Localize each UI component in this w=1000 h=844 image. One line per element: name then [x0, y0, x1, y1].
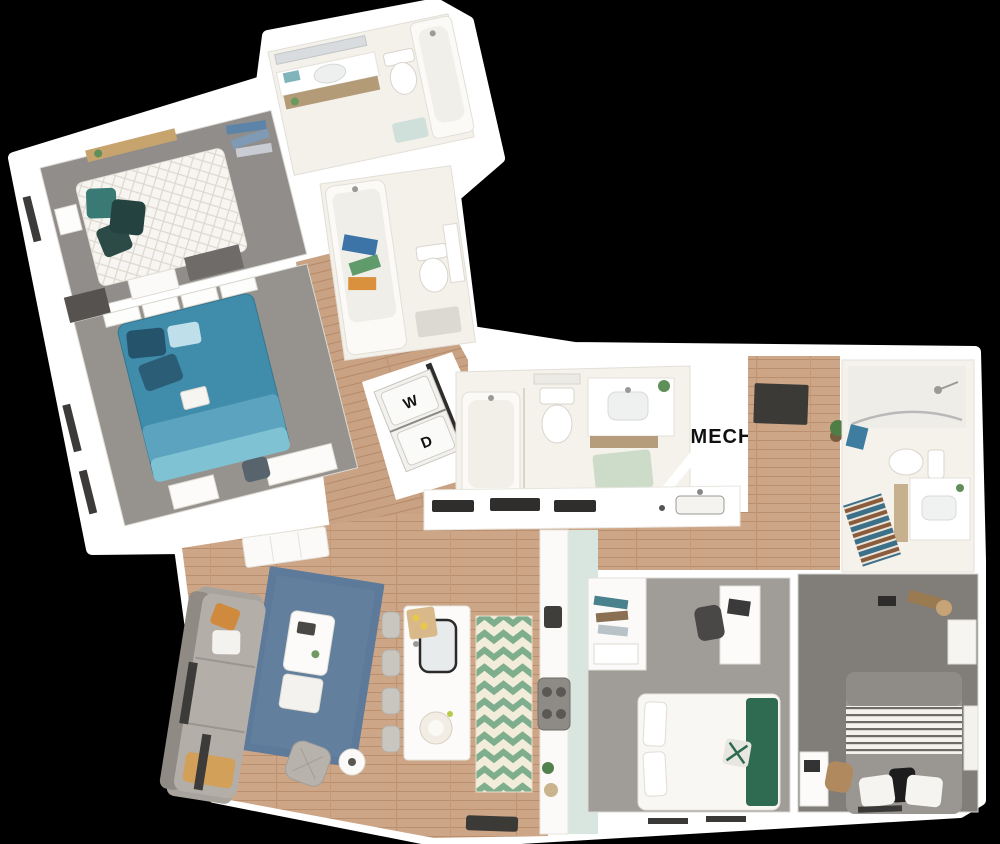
vanity-cabinet	[590, 436, 658, 448]
pillow	[643, 751, 667, 796]
coffee-maker	[544, 606, 562, 628]
laptop	[804, 760, 820, 772]
bag	[878, 596, 896, 606]
bowl	[544, 783, 558, 797]
counter-sink	[676, 496, 724, 514]
faucet	[413, 641, 419, 647]
decor-item	[348, 758, 356, 766]
toilet	[540, 388, 574, 443]
cooktop-vent	[554, 500, 596, 512]
cooktop-vent	[432, 500, 474, 512]
towel-rack	[534, 374, 580, 384]
faucet	[625, 387, 631, 393]
pillow-white	[858, 774, 896, 808]
bed-3	[638, 694, 780, 810]
cutting-board	[406, 606, 438, 640]
radiator	[964, 706, 978, 770]
vanity	[910, 478, 970, 540]
cooktop-vent	[490, 498, 540, 511]
perimeter-counter	[424, 486, 740, 530]
stove	[538, 678, 570, 730]
chevron-runner-rug	[476, 616, 532, 792]
bathroom-3	[456, 366, 702, 506]
bath-mat	[592, 449, 654, 493]
window-slot	[648, 818, 688, 824]
bed-4	[846, 672, 962, 814]
bathtub	[462, 392, 520, 496]
pillow	[643, 701, 667, 746]
window-slot	[706, 816, 746, 822]
plant	[658, 380, 670, 392]
pillow-charcoal	[109, 199, 146, 236]
bedroom-4	[798, 574, 978, 814]
bedroom-3	[588, 578, 790, 812]
mech-room-label: MECH	[691, 426, 754, 448]
entry-door-mat	[466, 815, 518, 832]
plant	[542, 762, 554, 774]
striped-duvet	[846, 706, 962, 754]
pillow-navy	[126, 327, 167, 359]
sink	[922, 496, 956, 520]
plant	[956, 484, 964, 492]
green-throw	[746, 698, 778, 806]
cabinet	[894, 484, 908, 542]
pattern-pillow	[722, 738, 752, 768]
bathroom-2	[320, 166, 475, 361]
laptop	[727, 599, 751, 617]
duvet-top	[846, 672, 962, 706]
pillow-white	[212, 630, 240, 654]
wall-clock	[936, 600, 952, 616]
side-table-low	[279, 674, 324, 714]
entry-hall	[748, 356, 846, 514]
shoe-shelf	[594, 644, 638, 664]
pillow-white	[905, 774, 944, 808]
towel-orange	[348, 277, 376, 290]
floor-plan-canvas: W D MECH	[0, 0, 1000, 844]
door-mat	[753, 383, 808, 425]
desk	[720, 586, 760, 664]
knob	[659, 505, 665, 511]
island	[404, 606, 470, 760]
sink	[608, 392, 648, 420]
faucet	[697, 489, 703, 495]
closet	[588, 578, 646, 670]
dresser	[948, 620, 976, 664]
floor-plan: W D MECH	[0, 0, 1000, 844]
bathroom-4	[842, 360, 974, 572]
